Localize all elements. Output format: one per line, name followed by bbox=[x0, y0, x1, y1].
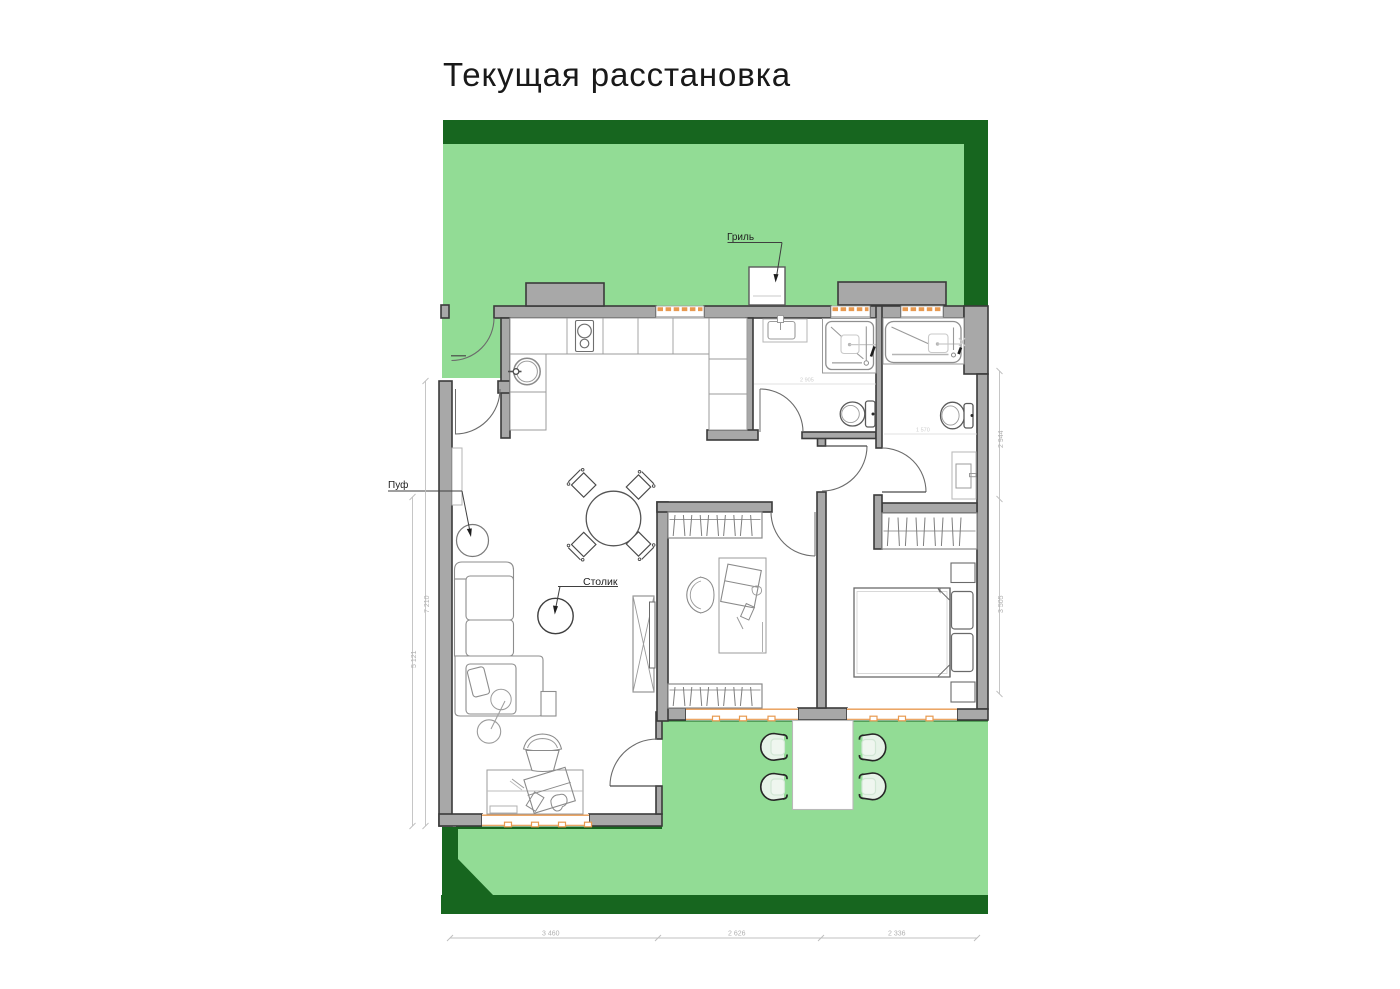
svg-text:7 210: 7 210 bbox=[424, 595, 431, 613]
svg-text:3 460: 3 460 bbox=[542, 931, 560, 938]
svg-text:Текущая расстановка: Текущая расстановка bbox=[443, 56, 791, 93]
svg-text:5 121: 5 121 bbox=[411, 650, 418, 668]
svg-text:2 905: 2 905 bbox=[800, 378, 814, 384]
svg-text:1 570: 1 570 bbox=[916, 428, 930, 434]
svg-text:3 505: 3 505 bbox=[998, 595, 1005, 613]
svg-text:Гриль: Гриль bbox=[727, 232, 754, 243]
svg-text:Пуф: Пуф bbox=[388, 479, 408, 491]
svg-text:2 336: 2 336 bbox=[888, 931, 906, 938]
svg-text:2 626: 2 626 bbox=[728, 931, 746, 938]
svg-text:2 944: 2 944 bbox=[998, 430, 1005, 448]
